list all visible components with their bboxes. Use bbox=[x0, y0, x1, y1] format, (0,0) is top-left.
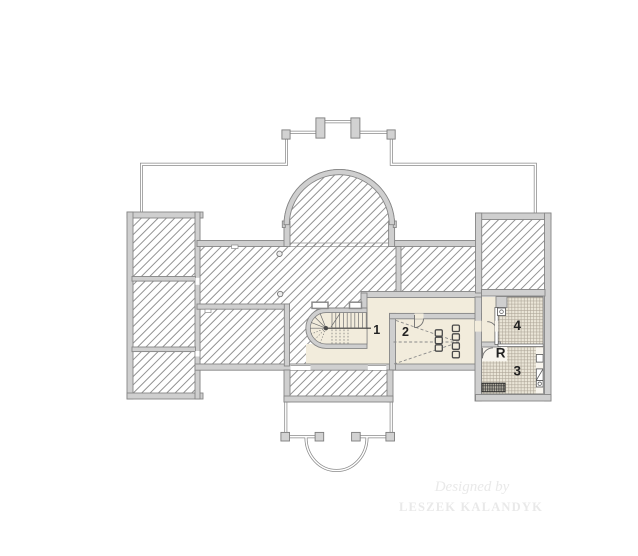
svg-text:3: 3 bbox=[514, 363, 522, 378]
svg-text:2: 2 bbox=[402, 325, 409, 339]
svg-text:4: 4 bbox=[514, 318, 522, 333]
svg-text:R: R bbox=[496, 345, 506, 360]
svg-text:1: 1 bbox=[373, 323, 380, 337]
svg-text:Designed by: Designed by bbox=[434, 479, 510, 495]
svg-text:LESZEK KALANDYK: LESZEK KALANDYK bbox=[399, 500, 543, 514]
